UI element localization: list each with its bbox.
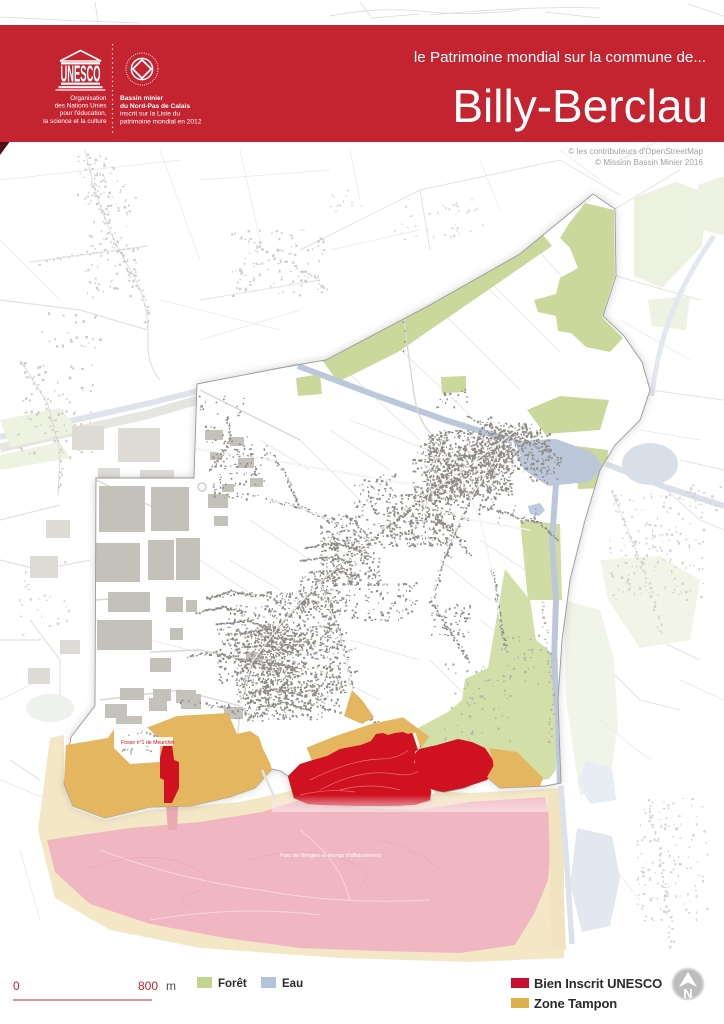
svg-text:Zone Tampon: Zone Tampon xyxy=(534,996,617,1011)
svg-text:N: N xyxy=(683,986,692,1001)
svg-text:du Nord-Pas de Calais: du Nord-Pas de Calais xyxy=(120,103,190,110)
svg-text:© Mission Bassin Minier 2016: © Mission Bassin Minier 2016 xyxy=(595,158,703,167)
svg-text:le Patrimoine mondial sur la c: le Patrimoine mondial sur la commune de.… xyxy=(414,49,706,66)
svg-text:Billy-Berclau: Billy-Berclau xyxy=(452,80,708,132)
svg-text:Bien Inscrit UNESCO: Bien Inscrit UNESCO xyxy=(534,976,662,991)
svg-text:Forêt: Forêt xyxy=(218,978,247,990)
svg-text:Parc de Wingles et étangs d'af: Parc de Wingles et étangs d'affaissement xyxy=(280,853,381,859)
svg-text:la science et la culture: la science et la culture xyxy=(43,118,107,125)
svg-text:Organisation: Organisation xyxy=(70,95,107,102)
svg-text:pour l'éducation,: pour l'éducation, xyxy=(60,110,107,117)
svg-text:0: 0 xyxy=(13,979,20,993)
svg-text:Fosse n°1 de Meurchin: Fosse n°1 de Meurchin xyxy=(121,740,175,746)
svg-text:800: 800 xyxy=(138,979,158,993)
svg-text:inscrit sur la Liste du: inscrit sur la Liste du xyxy=(120,111,180,118)
svg-text:patrimoine mondial en 2012: patrimoine mondial en 2012 xyxy=(120,118,202,125)
svg-text:m: m xyxy=(166,979,176,993)
svg-text:des Nations Unies: des Nations Unies xyxy=(55,103,107,110)
svg-text:Eau: Eau xyxy=(282,978,303,990)
svg-text:Bassin minier: Bassin minier xyxy=(120,95,164,102)
svg-text:© les contributeurs d'OpenStre: © les contributeurs d'OpenStreetMap xyxy=(568,147,703,156)
